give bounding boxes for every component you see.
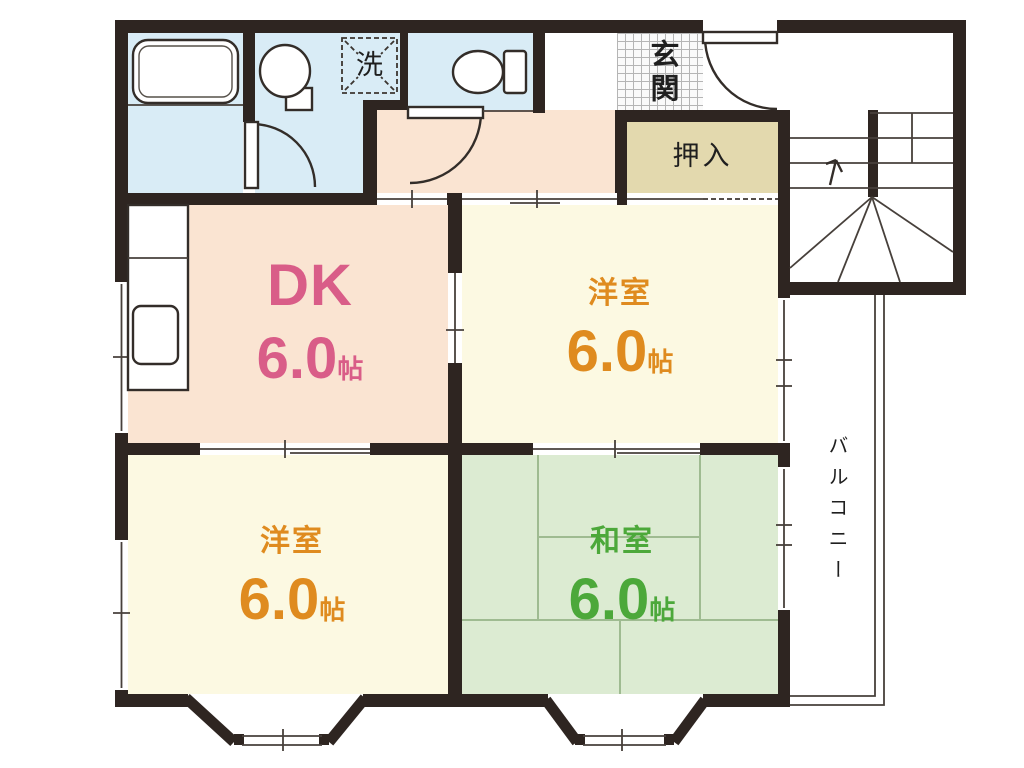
sliding-door-dk-western-top — [446, 273, 464, 363]
wall-bottom-1 — [115, 694, 188, 707]
wall-dk-divider-lower — [448, 363, 462, 443]
toilet-bowl — [453, 51, 526, 93]
japanese-room-label: 和室 6.0帖 — [542, 516, 702, 633]
western-top-name: 洋室 — [540, 268, 700, 312]
western-top-room-label: 洋室 6.0帖 — [540, 268, 700, 385]
wall-left-upper — [115, 20, 128, 282]
bay-window-japanese — [546, 700, 705, 751]
japanese-name: 和室 — [542, 516, 702, 560]
western-top-size: 6.0帖 — [540, 318, 700, 385]
wall-stub — [363, 110, 377, 205]
western-bottom-room-label: 洋室 6.0帖 — [212, 516, 372, 633]
sliding-door-western-top-japanese — [533, 440, 700, 458]
wall-left-mid — [115, 433, 128, 540]
window-western-top-balcony — [776, 298, 792, 443]
floorplan-geometry — [0, 0, 1024, 768]
western-bottom-name: 洋室 — [212, 516, 372, 560]
washroom-door — [245, 122, 315, 188]
sliding-door-dk-western-bottom — [200, 440, 370, 458]
laundry-label: 洗 — [342, 38, 397, 93]
dk-room-label: DK 6.0帖 — [225, 252, 395, 392]
wall-right-outer — [953, 20, 966, 295]
toilet-door — [408, 107, 483, 183]
wash-basin — [260, 45, 312, 110]
sliding-door-dk-hall — [377, 190, 447, 208]
wall-balcony-lower — [778, 610, 790, 707]
balcony-label: バルコニー — [806, 402, 846, 622]
wall-connector — [363, 100, 408, 110]
wall-stair-bottom — [782, 282, 966, 295]
kitchen-counter — [128, 205, 188, 390]
wall-hall-pillar — [447, 193, 462, 205]
wall-balcony-upper — [778, 110, 790, 298]
dk-size: 6.0帖 — [225, 325, 395, 392]
sliding-door-closet — [627, 193, 703, 205]
bathtub — [133, 40, 238, 103]
entrance-label: 玄関 — [636, 34, 676, 112]
bay-window-western-bottom — [186, 698, 365, 751]
wall-closet-left — [615, 110, 627, 205]
closet-label: 押入 — [627, 143, 778, 170]
wall-top-left — [115, 20, 703, 33]
kitchen-sink — [133, 306, 178, 364]
entrance-door — [703, 32, 777, 109]
floor-plan: DK 6.0帖 洋室 6.0帖 洋室 6.0帖 和室 6.0帖 玄関 押入 バル… — [0, 0, 1024, 768]
wall-washroom-bottom — [115, 193, 377, 205]
wall-top-right — [777, 20, 966, 33]
wall-mid-3 — [700, 443, 790, 455]
staircase — [790, 113, 953, 282]
western-bottom-size: 6.0帖 — [212, 566, 372, 633]
japanese-size: 6.0帖 — [542, 566, 702, 633]
wall-toilet-right — [533, 33, 545, 113]
wall-mid-1 — [128, 443, 200, 455]
wall-bottom-divider — [448, 443, 462, 694]
window-western-bottom-left — [113, 540, 130, 690]
wall-bottom-2 — [363, 694, 548, 707]
wall-dk-divider-upper — [448, 205, 462, 273]
wall-stair-stub — [868, 110, 878, 197]
sliding-door-western-top-hall — [462, 190, 617, 208]
wall-bath-divider — [243, 33, 255, 122]
dk-name: DK — [225, 252, 395, 319]
wall-bottom-3 — [703, 694, 790, 707]
window-japanese-balcony — [776, 467, 792, 610]
wall-toilet-left — [400, 33, 408, 110]
